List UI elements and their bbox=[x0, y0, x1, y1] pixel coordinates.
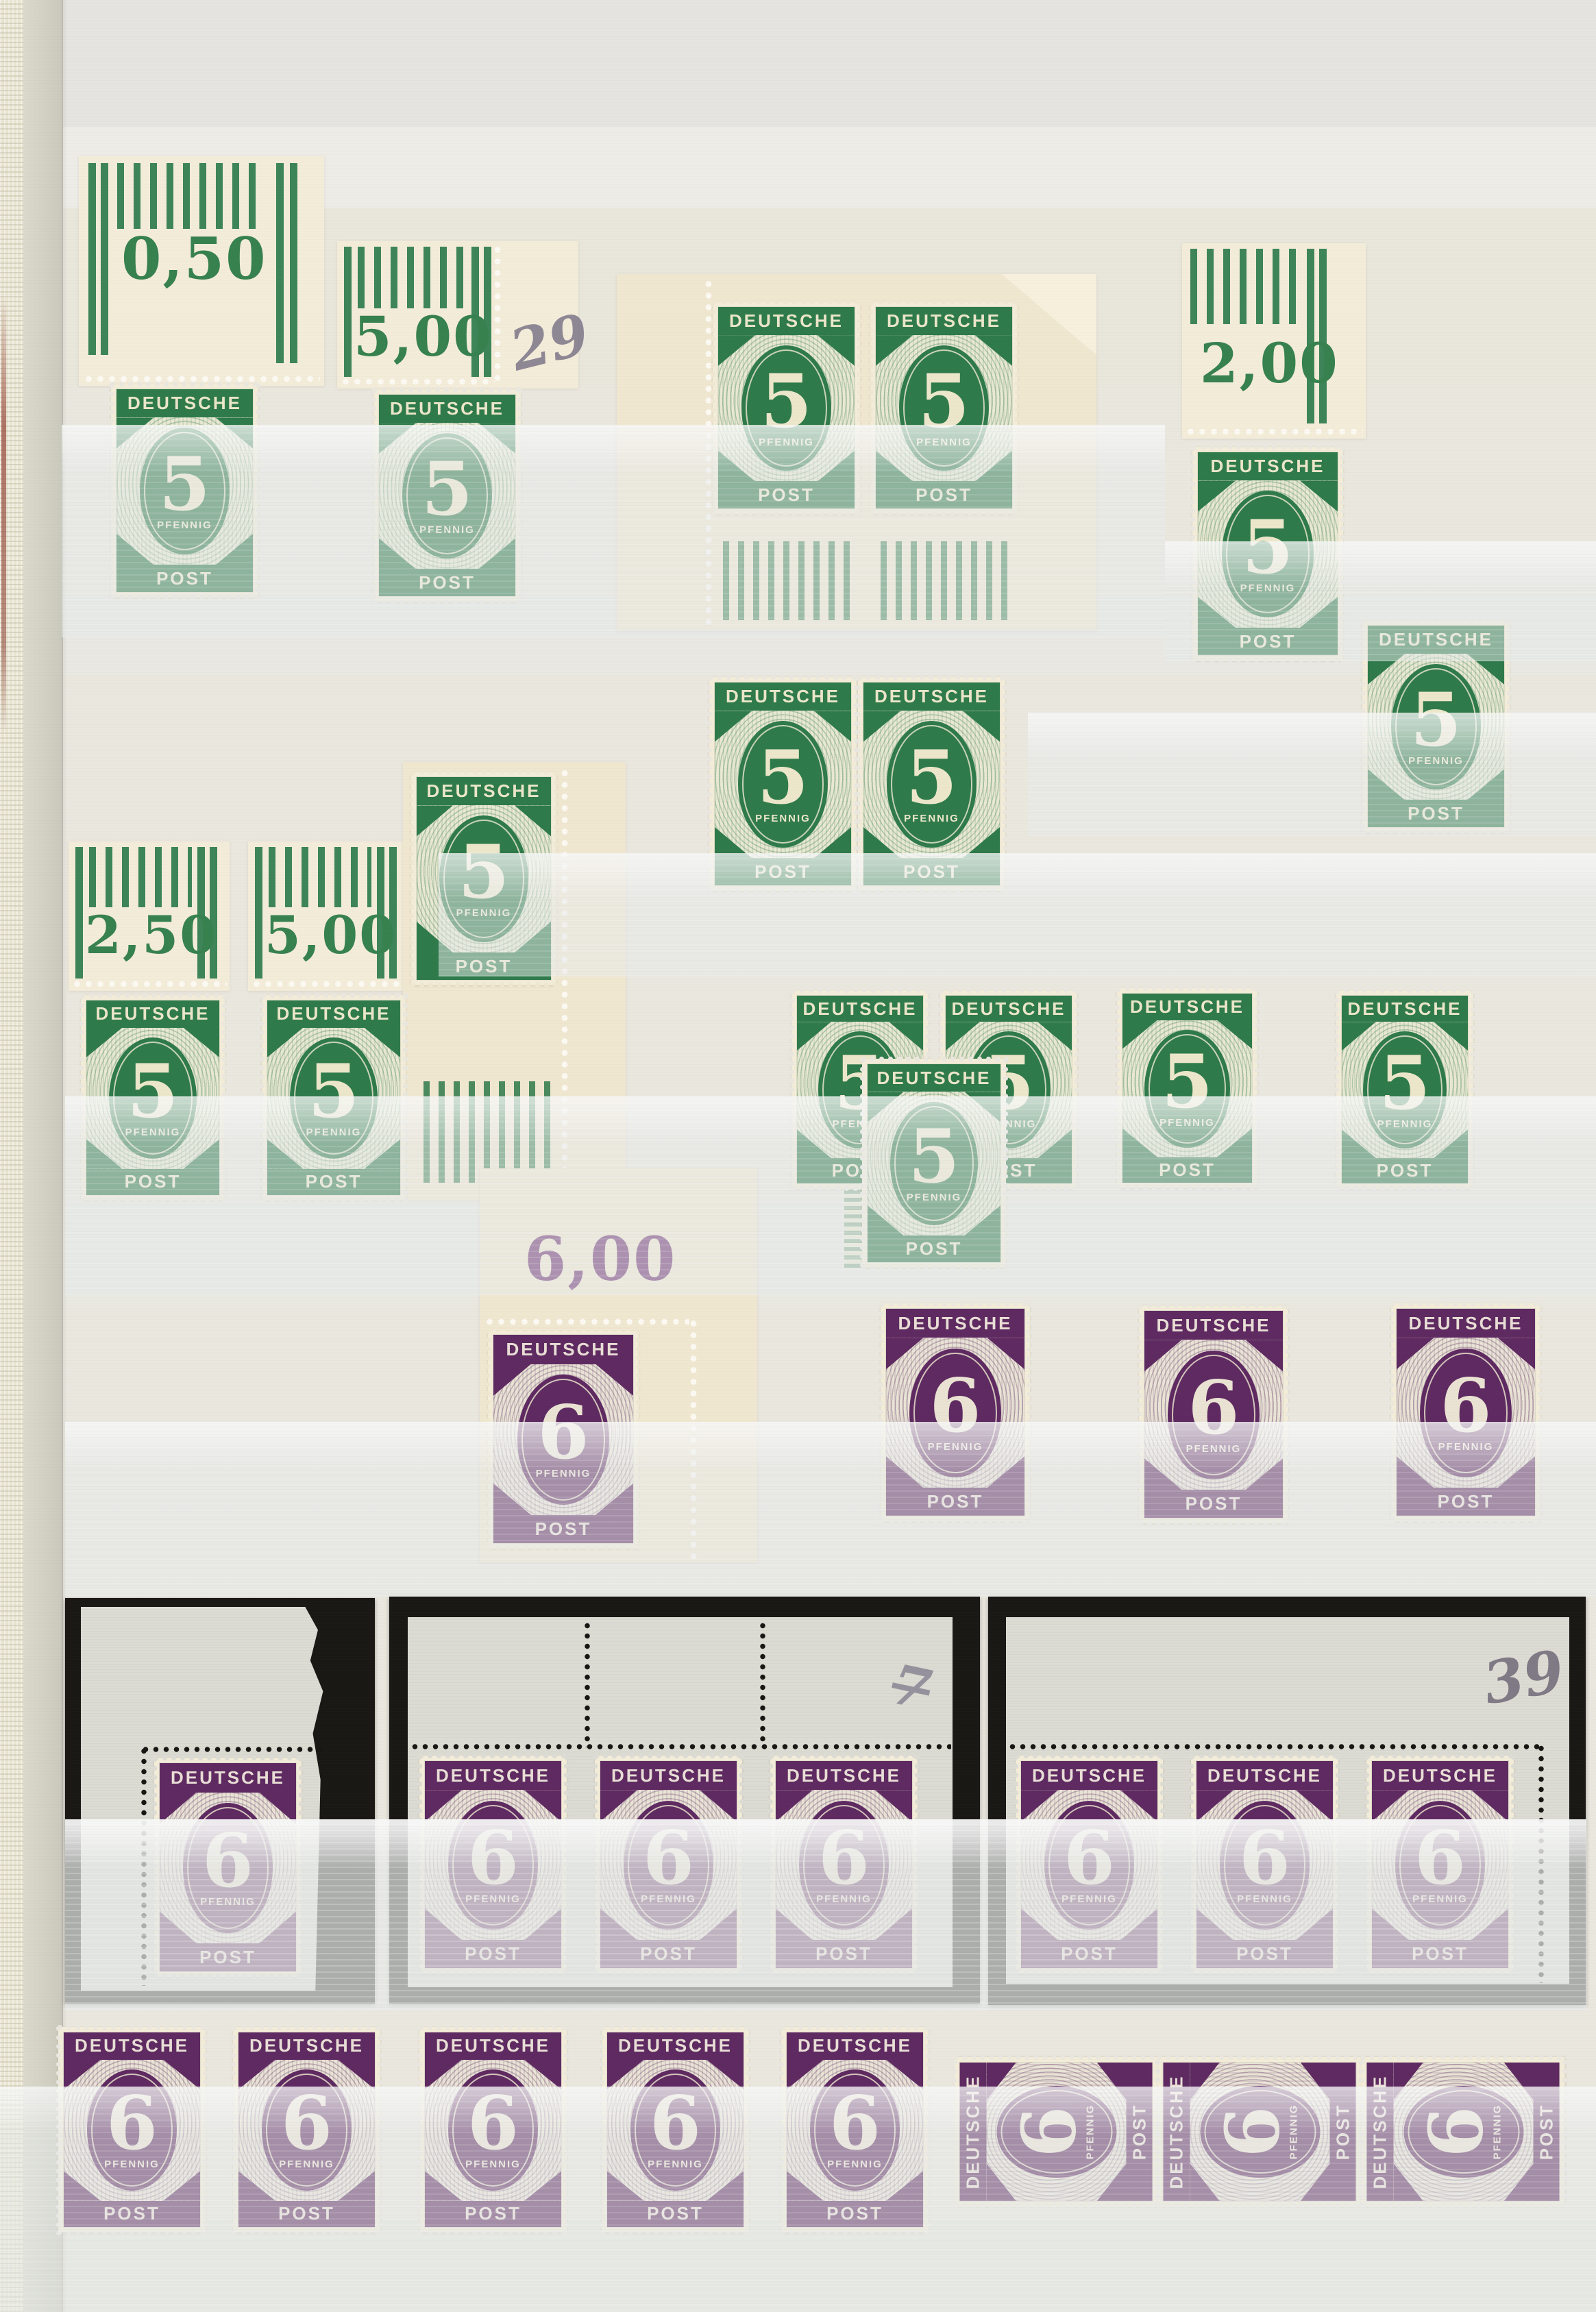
corner-ornament bbox=[238, 2060, 275, 2089]
corner-ornament bbox=[886, 1338, 924, 1369]
margin-piece-2-00: 2,00 bbox=[1182, 243, 1366, 439]
margin-bar bbox=[101, 163, 108, 355]
stamp-country-label: DEUTSCHE bbox=[715, 682, 851, 711]
margin-bars bbox=[358, 247, 467, 308]
margin-bars bbox=[269, 847, 371, 907]
stamp-country-label: DEUTSCHE bbox=[886, 1309, 1024, 1338]
perforation-row-dark bbox=[1007, 1743, 1540, 1750]
corner-ornament bbox=[600, 1790, 637, 1821]
stamp-country-label: DEUTSCHE bbox=[86, 1000, 219, 1028]
corner-ornament bbox=[987, 1338, 1024, 1369]
corner-ornament bbox=[1217, 1020, 1252, 1049]
margin-piece-2-50: 2,50 bbox=[69, 841, 230, 991]
stamp-country-label: DEUTSCHE bbox=[267, 1000, 400, 1028]
corner-ornament bbox=[267, 1028, 303, 1057]
stamp-country-label: DEUTSCHE bbox=[600, 1761, 737, 1790]
stamp-denomination: 5 bbox=[906, 745, 957, 811]
mounting-strip-overlay bbox=[65, 1819, 1586, 2010]
corner-ornament bbox=[715, 711, 752, 741]
corner-ornament bbox=[1434, 1022, 1468, 1050]
stamp-country-label: DEUTSCHE bbox=[787, 2032, 923, 2060]
margin-value-label: 0,50 bbox=[121, 225, 267, 293]
corner-ornament bbox=[1372, 1790, 1409, 1821]
perforation-row-dark bbox=[410, 1743, 951, 1750]
stamp-country-label: DEUTSCHE bbox=[1397, 1309, 1535, 1338]
stamp-denomination: 5 bbox=[757, 745, 809, 811]
stamp-country-label: DEUTSCHE bbox=[160, 1763, 296, 1793]
margin-bar bbox=[255, 847, 262, 979]
margin-bar bbox=[290, 163, 297, 363]
stamp-country-label: DEUTSCHE bbox=[776, 1761, 912, 1790]
stamp-value-oval: 5PFENNIG bbox=[738, 721, 828, 848]
corner-ornament bbox=[1196, 1790, 1233, 1821]
corner-ornament bbox=[425, 2060, 462, 2089]
stamp-country-label: DEUTSCHE bbox=[946, 996, 1072, 1022]
corner-ornament bbox=[1144, 1340, 1182, 1371]
perforation-row bbox=[1185, 428, 1363, 436]
album-binding-strip bbox=[23, 0, 63, 2312]
stamp-country-label: DEUTSCHE bbox=[1196, 1761, 1333, 1790]
perforation-row bbox=[71, 980, 227, 988]
stamp-country-label: DEUTSCHE bbox=[718, 307, 855, 335]
corner-ornament bbox=[64, 2060, 101, 2089]
corner-ornament bbox=[876, 335, 913, 366]
stamp-country-label: DEUTSCHE bbox=[1372, 1761, 1508, 1790]
stamp-country-label: DEUTSCHE bbox=[1122, 994, 1252, 1020]
margin-bars bbox=[117, 163, 262, 229]
stamp-country-label: DEUTSCHE bbox=[1198, 452, 1338, 480]
corner-ornament bbox=[1120, 1790, 1157, 1821]
stamp-country-label: DEUTSCHE bbox=[797, 996, 923, 1022]
stamp-country-label: DEUTSCHE bbox=[417, 777, 551, 805]
corner-ornament bbox=[1296, 1790, 1333, 1821]
corner-ornament bbox=[814, 711, 851, 741]
mounting-strip bbox=[1028, 713, 1596, 836]
corner-ornament bbox=[886, 2060, 923, 2089]
margin-value-label: 5,00 bbox=[265, 905, 397, 966]
pencil-note-39: 39 bbox=[1478, 1637, 1569, 1718]
corner-ornament bbox=[524, 2060, 561, 2089]
stamp-country-label: DEUTSCHE bbox=[425, 1761, 561, 1790]
corner-ornament bbox=[875, 1790, 912, 1821]
stamp-guilloche: 5PFENNIG bbox=[863, 711, 1000, 858]
corner-ornament bbox=[607, 2060, 644, 2089]
mounting-strip bbox=[62, 425, 1165, 637]
corner-ornament bbox=[963, 711, 1000, 741]
corner-ornament bbox=[889, 1022, 923, 1050]
mounting-strip bbox=[1165, 541, 1596, 661]
margin-bar bbox=[88, 163, 96, 355]
perforation-row bbox=[83, 375, 320, 383]
corner-ornament bbox=[1471, 1790, 1508, 1821]
corner-ornament bbox=[493, 1364, 531, 1396]
margin-value-label: 2,50 bbox=[85, 905, 217, 966]
corner-ornament bbox=[797, 1022, 831, 1050]
corner-ornament bbox=[1497, 1338, 1535, 1369]
corner-ornament bbox=[707, 2060, 744, 2089]
corner-ornament bbox=[365, 1028, 400, 1057]
corner-ornament bbox=[338, 2060, 375, 2089]
stamp-currency-label: PFENNIG bbox=[904, 813, 959, 824]
corner-ornament bbox=[863, 711, 900, 741]
perforation-row-dark bbox=[140, 1746, 326, 1753]
stamp-country-label: DEUTSCHE bbox=[863, 682, 1000, 711]
corner-ornament bbox=[163, 2060, 200, 2089]
perforation-row bbox=[251, 980, 406, 988]
corner-ornament bbox=[596, 1364, 633, 1396]
margin-bar bbox=[75, 847, 83, 979]
stamp-country-label: DEUTSCHE bbox=[607, 2032, 744, 2060]
stockbook-scan: { "designs": { "green5": {"country":"DEU… bbox=[0, 0, 1596, 2312]
stamp-currency-label: PFENNIG bbox=[755, 813, 811, 824]
stamp-country-label: DEUTSCHE bbox=[1021, 1761, 1157, 1790]
margin-piece-5-00-b: 5,00 bbox=[248, 841, 409, 991]
corner-ornament bbox=[1021, 1790, 1058, 1821]
corner-ornament bbox=[524, 1790, 561, 1821]
perforation-column-dark bbox=[584, 1621, 591, 1747]
perforation-row bbox=[484, 1318, 689, 1326]
corner-ornament bbox=[184, 1028, 219, 1057]
stamp-country-label: DEUTSCHE bbox=[493, 1335, 633, 1364]
red-binding-thread bbox=[1, 295, 6, 733]
stamp-country-label: DEUTSCHE bbox=[1342, 996, 1468, 1022]
margin-piece-0-50: 0,50 bbox=[79, 156, 324, 386]
stamp-country-label: DEUTSCHE bbox=[238, 2032, 375, 2060]
corner-ornament bbox=[417, 805, 453, 836]
stamp-guilloche: 5PFENNIG bbox=[715, 711, 851, 858]
corner-ornament bbox=[975, 335, 1012, 366]
perforation-column bbox=[493, 244, 502, 385]
corner-ornament bbox=[1038, 1022, 1072, 1050]
corner-ornament bbox=[1397, 1338, 1434, 1369]
margin-bar bbox=[276, 163, 284, 363]
corner-ornament bbox=[818, 335, 855, 366]
stamp-country-label: DEUTSCHE bbox=[876, 307, 1012, 335]
stamp-country-label: DEUTSCHE bbox=[425, 2032, 561, 2060]
stamp-country-label: DEUTSCHE bbox=[1144, 1311, 1283, 1340]
margin-bars bbox=[89, 847, 192, 907]
corner-ornament bbox=[1342, 1022, 1376, 1050]
margin-value-label: 2,00 bbox=[1200, 331, 1339, 395]
corner-ornament bbox=[1122, 1020, 1157, 1049]
margin-value-label: 5,00 bbox=[354, 304, 493, 369]
perforation-row bbox=[340, 378, 495, 386]
stamp-country-label: DEUTSCHE bbox=[868, 1064, 1000, 1092]
corner-ornament bbox=[787, 2060, 824, 2089]
mounting-strip bbox=[0, 2087, 1596, 2312]
mounting-strip bbox=[439, 853, 1596, 976]
corner-ornament bbox=[776, 1790, 813, 1821]
stamp-country-label: DEUTSCHE bbox=[64, 2032, 200, 2060]
stamp-value-oval: 5PFENNIG bbox=[887, 721, 977, 848]
corner-ornament bbox=[700, 1790, 737, 1821]
margin-bar bbox=[344, 247, 352, 377]
corner-ornament bbox=[425, 1790, 462, 1821]
margin-bars bbox=[1190, 249, 1301, 324]
corner-ornament bbox=[1245, 1340, 1283, 1371]
corner-ornament bbox=[1300, 480, 1338, 511]
corner-ornament bbox=[515, 805, 551, 836]
corner-ornament bbox=[718, 335, 755, 366]
mounting-strip bbox=[65, 1422, 1596, 1597]
corner-ornament bbox=[86, 1028, 122, 1057]
stamp-country-label: DEUTSCHE bbox=[379, 395, 515, 423]
corner-ornament bbox=[946, 1022, 980, 1050]
perforation-column-dark bbox=[759, 1621, 766, 1747]
page-band-top bbox=[0, 0, 1596, 127]
mounting-strip bbox=[65, 1096, 1596, 1295]
stamp-country-label: DEUTSCHE bbox=[116, 389, 253, 417]
corner-ornament bbox=[1198, 480, 1236, 511]
